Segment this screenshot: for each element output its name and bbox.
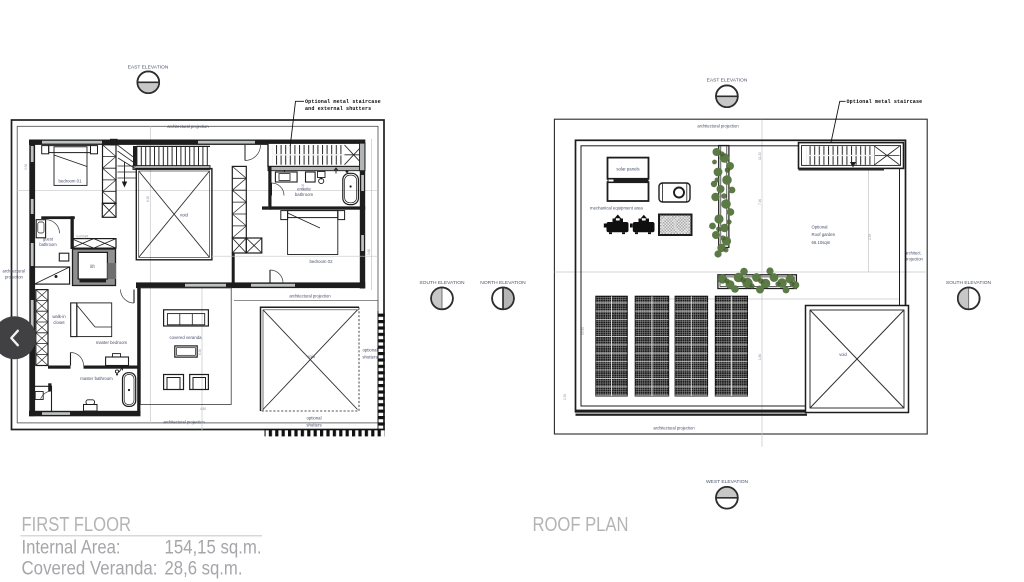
svg-text:projection: projection (905, 257, 923, 262)
svg-text:3.60: 3.60 (367, 249, 371, 255)
svg-text:covered veranda: covered veranda (169, 335, 202, 340)
svg-text:master bathroom: master bathroom (80, 376, 113, 381)
svg-text:walk-in: walk-in (52, 314, 66, 319)
svg-text:architectural: architectural (3, 269, 25, 274)
svg-text:optional: optional (362, 348, 377, 353)
svg-text:SOUTH ELEVATION: SOUTH ELEVATION (946, 280, 992, 286)
svg-text:shutters: shutters (362, 355, 377, 360)
svg-text:bedroom 01: bedroom 01 (59, 179, 83, 184)
svg-text:7.90: 7.90 (758, 199, 762, 205)
svg-text:void: void (180, 213, 188, 218)
svg-text:bedroom 02: bedroom 02 (310, 259, 334, 264)
svg-text:solar panels: solar panels (616, 167, 639, 172)
svg-text:28,6 sq.m.: 28,6 sq.m. (165, 559, 243, 580)
svg-text:void: void (307, 354, 315, 359)
svg-text:EAST ELEVATION: EAST ELEVATION (707, 78, 748, 84)
svg-text:11.20: 11.20 (758, 152, 762, 160)
svg-text:shutters: shutters (306, 423, 321, 428)
svg-text:bathroom: bathroom (295, 192, 314, 197)
svg-text:architectural projection: architectural projection (163, 419, 205, 424)
svg-text:Optional metal staircase: Optional metal staircase (305, 99, 381, 105)
svg-text:roof light: roof light (76, 235, 88, 239)
svg-text:SOUTH ELEVATION: SOUTH ELEVATION (419, 280, 465, 286)
svg-text:NORTH ELEVATION: NORTH ELEVATION (480, 280, 526, 286)
svg-text:guest: guest (43, 237, 54, 242)
svg-text:6.90: 6.90 (198, 349, 202, 355)
svg-text:WEST ELEVATION: WEST ELEVATION (706, 479, 749, 485)
svg-text:Internal Area:: Internal Area: (22, 538, 121, 559)
svg-text:3.50: 3.50 (24, 164, 28, 170)
svg-text:and external shutters: and external shutters (305, 106, 371, 112)
svg-text:6.30: 6.30 (146, 196, 150, 202)
svg-text:master bedroom: master bedroom (96, 340, 128, 345)
svg-text:architectural projection: architectural projection (697, 124, 739, 129)
svg-text:ROOF PLAN: ROOF PLAN (533, 514, 629, 536)
svg-text:Optional metal staircase: Optional metal staircase (847, 99, 923, 105)
svg-text:optional: optional (306, 416, 321, 421)
svg-text:architectural projection: architectural projection (289, 294, 331, 299)
svg-text:FIRST FLOOR: FIRST FLOOR (22, 514, 132, 536)
svg-text:architectural projection: architectural projection (167, 124, 209, 129)
svg-text:architectural projection: architectural projection (653, 425, 695, 430)
svg-text:ensuite: ensuite (297, 186, 311, 191)
svg-text:EAST ELEVATION: EAST ELEVATION (128, 65, 169, 71)
svg-text:Optional: Optional (812, 225, 828, 230)
svg-text:bathroom: bathroom (39, 242, 57, 247)
svg-text:closet: closet (53, 320, 65, 325)
svg-text:projection: projection (5, 275, 23, 280)
svg-text:13.30: 13.30 (581, 327, 585, 335)
svg-text:154,15 sq.m.: 154,15 sq.m. (165, 538, 262, 559)
svg-text:66.10sqm: 66.10sqm (812, 240, 831, 245)
svg-text:void: void (839, 352, 847, 357)
svg-text:mechanical equipment area: mechanical equipment area (590, 206, 643, 211)
svg-text:1.80: 1.80 (758, 354, 762, 360)
svg-text:1.50: 1.50 (563, 394, 567, 400)
svg-text:architect.: architect. (905, 251, 922, 256)
svg-text:Roof garden: Roof garden (812, 232, 836, 237)
svg-text:4.80: 4.80 (200, 407, 206, 411)
svg-text:Covered Veranda:: Covered Veranda: (22, 559, 158, 580)
svg-text:2.35: 2.35 (868, 234, 872, 240)
